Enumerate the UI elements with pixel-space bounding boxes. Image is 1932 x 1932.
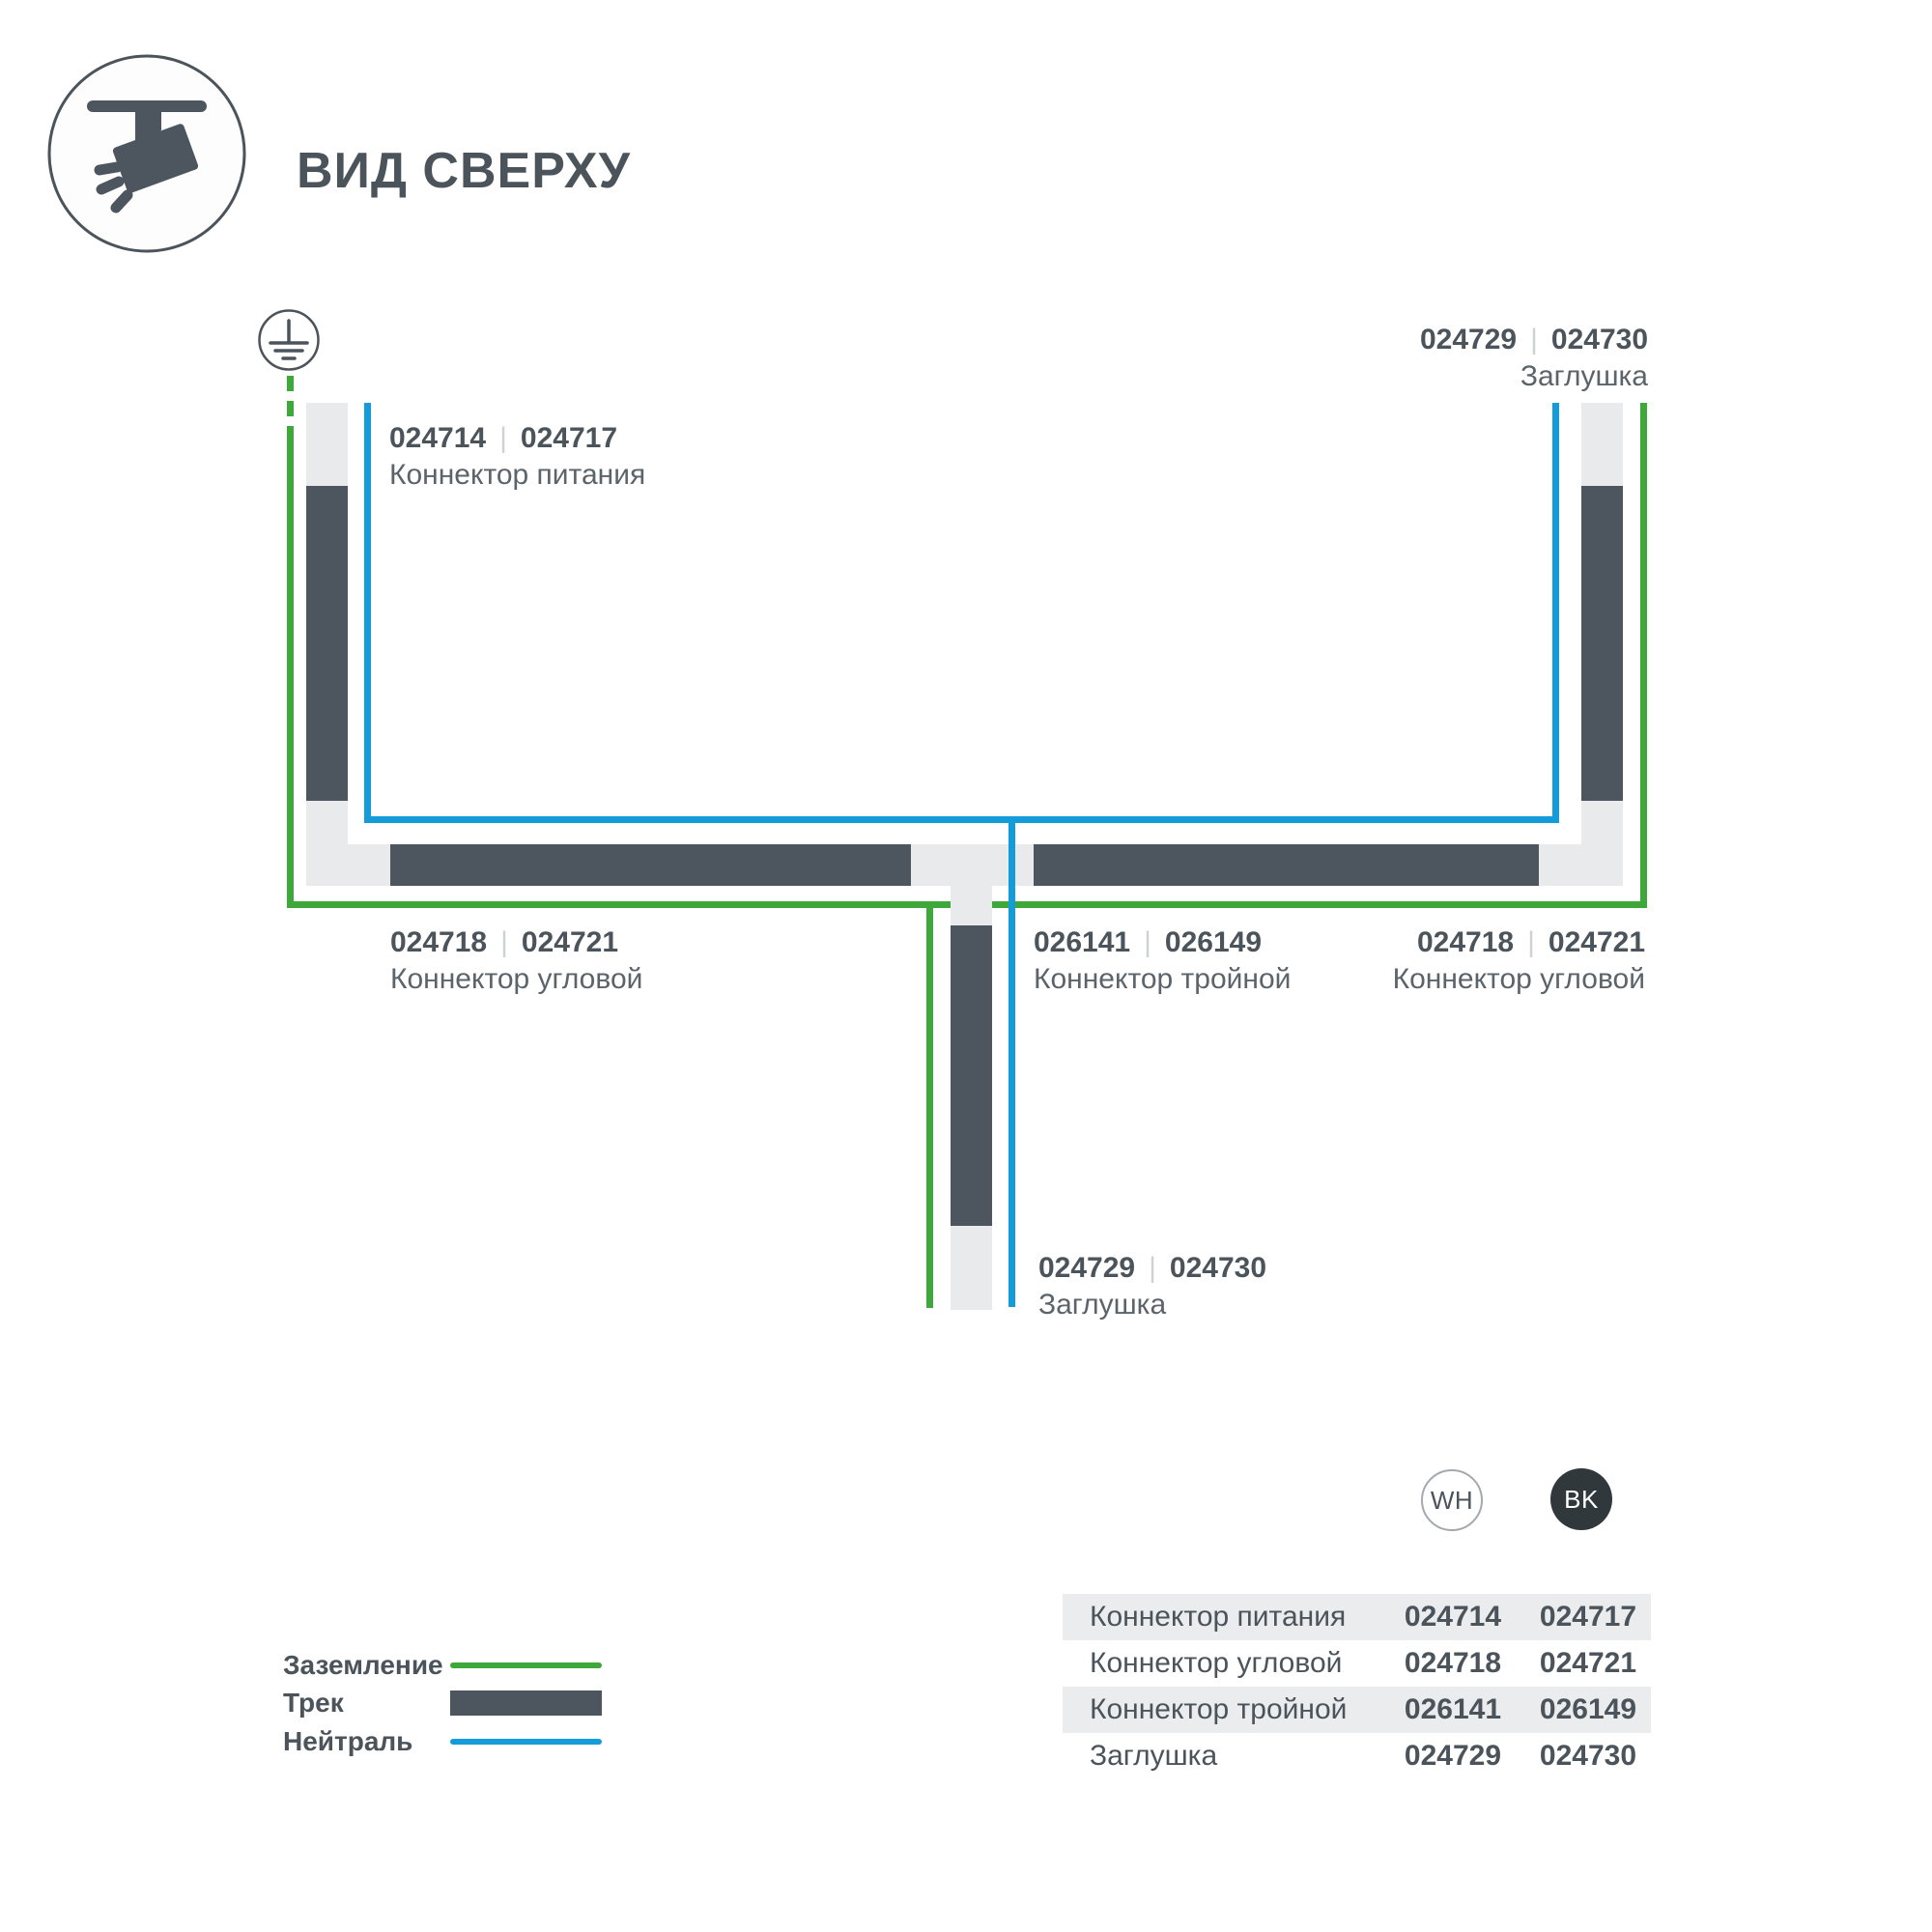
earth-ground-icon <box>257 308 321 372</box>
part-number-wh: 024718 <box>1417 926 1514 958</box>
part-number-bk: 024721 <box>1548 926 1645 958</box>
table-cell-wh: 026141 <box>1366 1693 1501 1726</box>
table-cell-wh: 024729 <box>1366 1740 1501 1773</box>
pipe-separator: | <box>1517 324 1551 355</box>
part-number-wh: 026141 <box>1034 926 1130 958</box>
part-name: Коннектор тройной <box>1034 961 1291 998</box>
pipe-separator: | <box>487 926 522 958</box>
track-endcap-right-top <box>1581 403 1623 486</box>
track-corner-left-horiz <box>348 844 390 886</box>
track-endcap-left-top <box>306 403 348 486</box>
part-number-bk: 024730 <box>1170 1252 1266 1284</box>
table-cell-name: Коннектор питания <box>1090 1601 1366 1634</box>
part-name: Коннектор питания <box>389 457 645 494</box>
label-tee-connector: 026141|026149 Коннектор тройной <box>1034 924 1291 998</box>
pipe-separator: | <box>1130 926 1165 958</box>
legend-swatch-ground <box>450 1662 602 1668</box>
part-name: Заглушка <box>1038 1287 1266 1323</box>
page: ВИД СВЕРХУ 024714|024717 Коннектор питан… <box>0 0 1932 1932</box>
track-bottom-left <box>390 844 911 886</box>
legend-label-track: Трек <box>283 1684 344 1722</box>
spotlight-track-icon <box>46 53 247 254</box>
track-corner-left-vert <box>306 801 348 886</box>
table-row: Коннектор тройной 026141 026149 <box>1063 1687 1651 1733</box>
track-left-vertical <box>306 486 348 801</box>
neutral-line-left <box>364 403 371 823</box>
pipe-separator: | <box>1135 1252 1170 1284</box>
part-name: Заглушка <box>1420 358 1648 395</box>
part-name: Коннектор угловой <box>390 961 642 998</box>
table-cell-bk: 024721 <box>1501 1647 1636 1680</box>
part-number-wh: 024714 <box>389 422 486 454</box>
variant-badge-black: BK <box>1550 1468 1612 1530</box>
ground-line-right <box>1640 403 1647 908</box>
ground-line-left <box>287 430 294 908</box>
part-number-wh: 024718 <box>390 926 487 958</box>
table-cell-wh: 024718 <box>1366 1647 1501 1680</box>
part-number-bk: 024721 <box>522 926 618 958</box>
part-numbers: 024718|024721 <box>390 924 642 961</box>
part-numbers: 024718|024721 <box>1393 924 1645 961</box>
neutral-line-stem <box>1009 816 1015 1307</box>
label-endcap-top: 024729|024730 Заглушка <box>1420 322 1648 395</box>
table-row: Заглушка 024729 024730 <box>1063 1733 1651 1779</box>
track-corner-right-vert <box>1581 801 1623 886</box>
part-numbers: 024729|024730 <box>1038 1250 1266 1287</box>
variant-badge-white: WH <box>1421 1469 1483 1531</box>
track-corner-right-horiz <box>1539 844 1581 886</box>
label-corner-connector-left: 024718|024721 Коннектор угловой <box>390 924 642 998</box>
track-bottom-right <box>1034 844 1539 886</box>
part-number-wh: 024729 <box>1038 1252 1135 1284</box>
pipe-separator: | <box>1514 926 1548 958</box>
part-numbers: 024729|024730 <box>1420 322 1648 358</box>
part-number-wh: 024729 <box>1420 324 1517 355</box>
track-stem-vertical <box>951 925 992 1226</box>
ground-line-dashed <box>287 376 294 430</box>
table-cell-bk: 024730 <box>1501 1740 1636 1773</box>
legend-label-neutral: Нейтраль <box>283 1722 412 1761</box>
part-numbers: 024714|024717 <box>389 420 645 457</box>
table-row: Коннектор угловой 024718 024721 <box>1063 1640 1651 1687</box>
table-cell-name: Коннектор угловой <box>1090 1647 1366 1680</box>
label-corner-connector-right: 024718|024721 Коннектор угловой <box>1393 924 1645 998</box>
table-cell-name: Заглушка <box>1090 1740 1366 1773</box>
part-number-bk: 024717 <box>521 422 617 454</box>
part-numbers: 026141|026149 <box>1034 924 1291 961</box>
table-row: Коннектор питания 024714 024717 <box>1063 1594 1651 1640</box>
page-title: ВИД СВЕРХУ <box>297 144 631 198</box>
parts-table: Коннектор питания 024714 024717 Коннекто… <box>1063 1594 1651 1779</box>
ground-line-stem <box>926 901 933 1308</box>
table-cell-wh: 024714 <box>1366 1601 1501 1634</box>
part-number-bk: 026149 <box>1165 926 1262 958</box>
pipe-separator: | <box>486 422 521 454</box>
table-cell-bk: 024717 <box>1501 1601 1636 1634</box>
legend-swatch-neutral <box>450 1739 602 1745</box>
table-cell-bk: 026149 <box>1501 1693 1636 1726</box>
part-name: Коннектор угловой <box>1393 961 1645 998</box>
label-power-connector: 024714|024717 Коннектор питания <box>389 420 645 494</box>
table-cell-name: Коннектор тройной <box>1090 1693 1366 1726</box>
neutral-line-bottom <box>364 816 1559 823</box>
legend-label-ground: Заземление <box>283 1646 443 1685</box>
legend-swatch-track <box>450 1690 602 1716</box>
track-endcap-stem-bottom <box>951 1226 992 1310</box>
label-endcap-bottom: 024729|024730 Заглушка <box>1038 1250 1266 1323</box>
part-number-bk: 024730 <box>1551 324 1648 355</box>
track-right-vertical <box>1581 486 1623 801</box>
neutral-line-right <box>1552 403 1559 823</box>
track-tee-stem <box>951 886 992 925</box>
